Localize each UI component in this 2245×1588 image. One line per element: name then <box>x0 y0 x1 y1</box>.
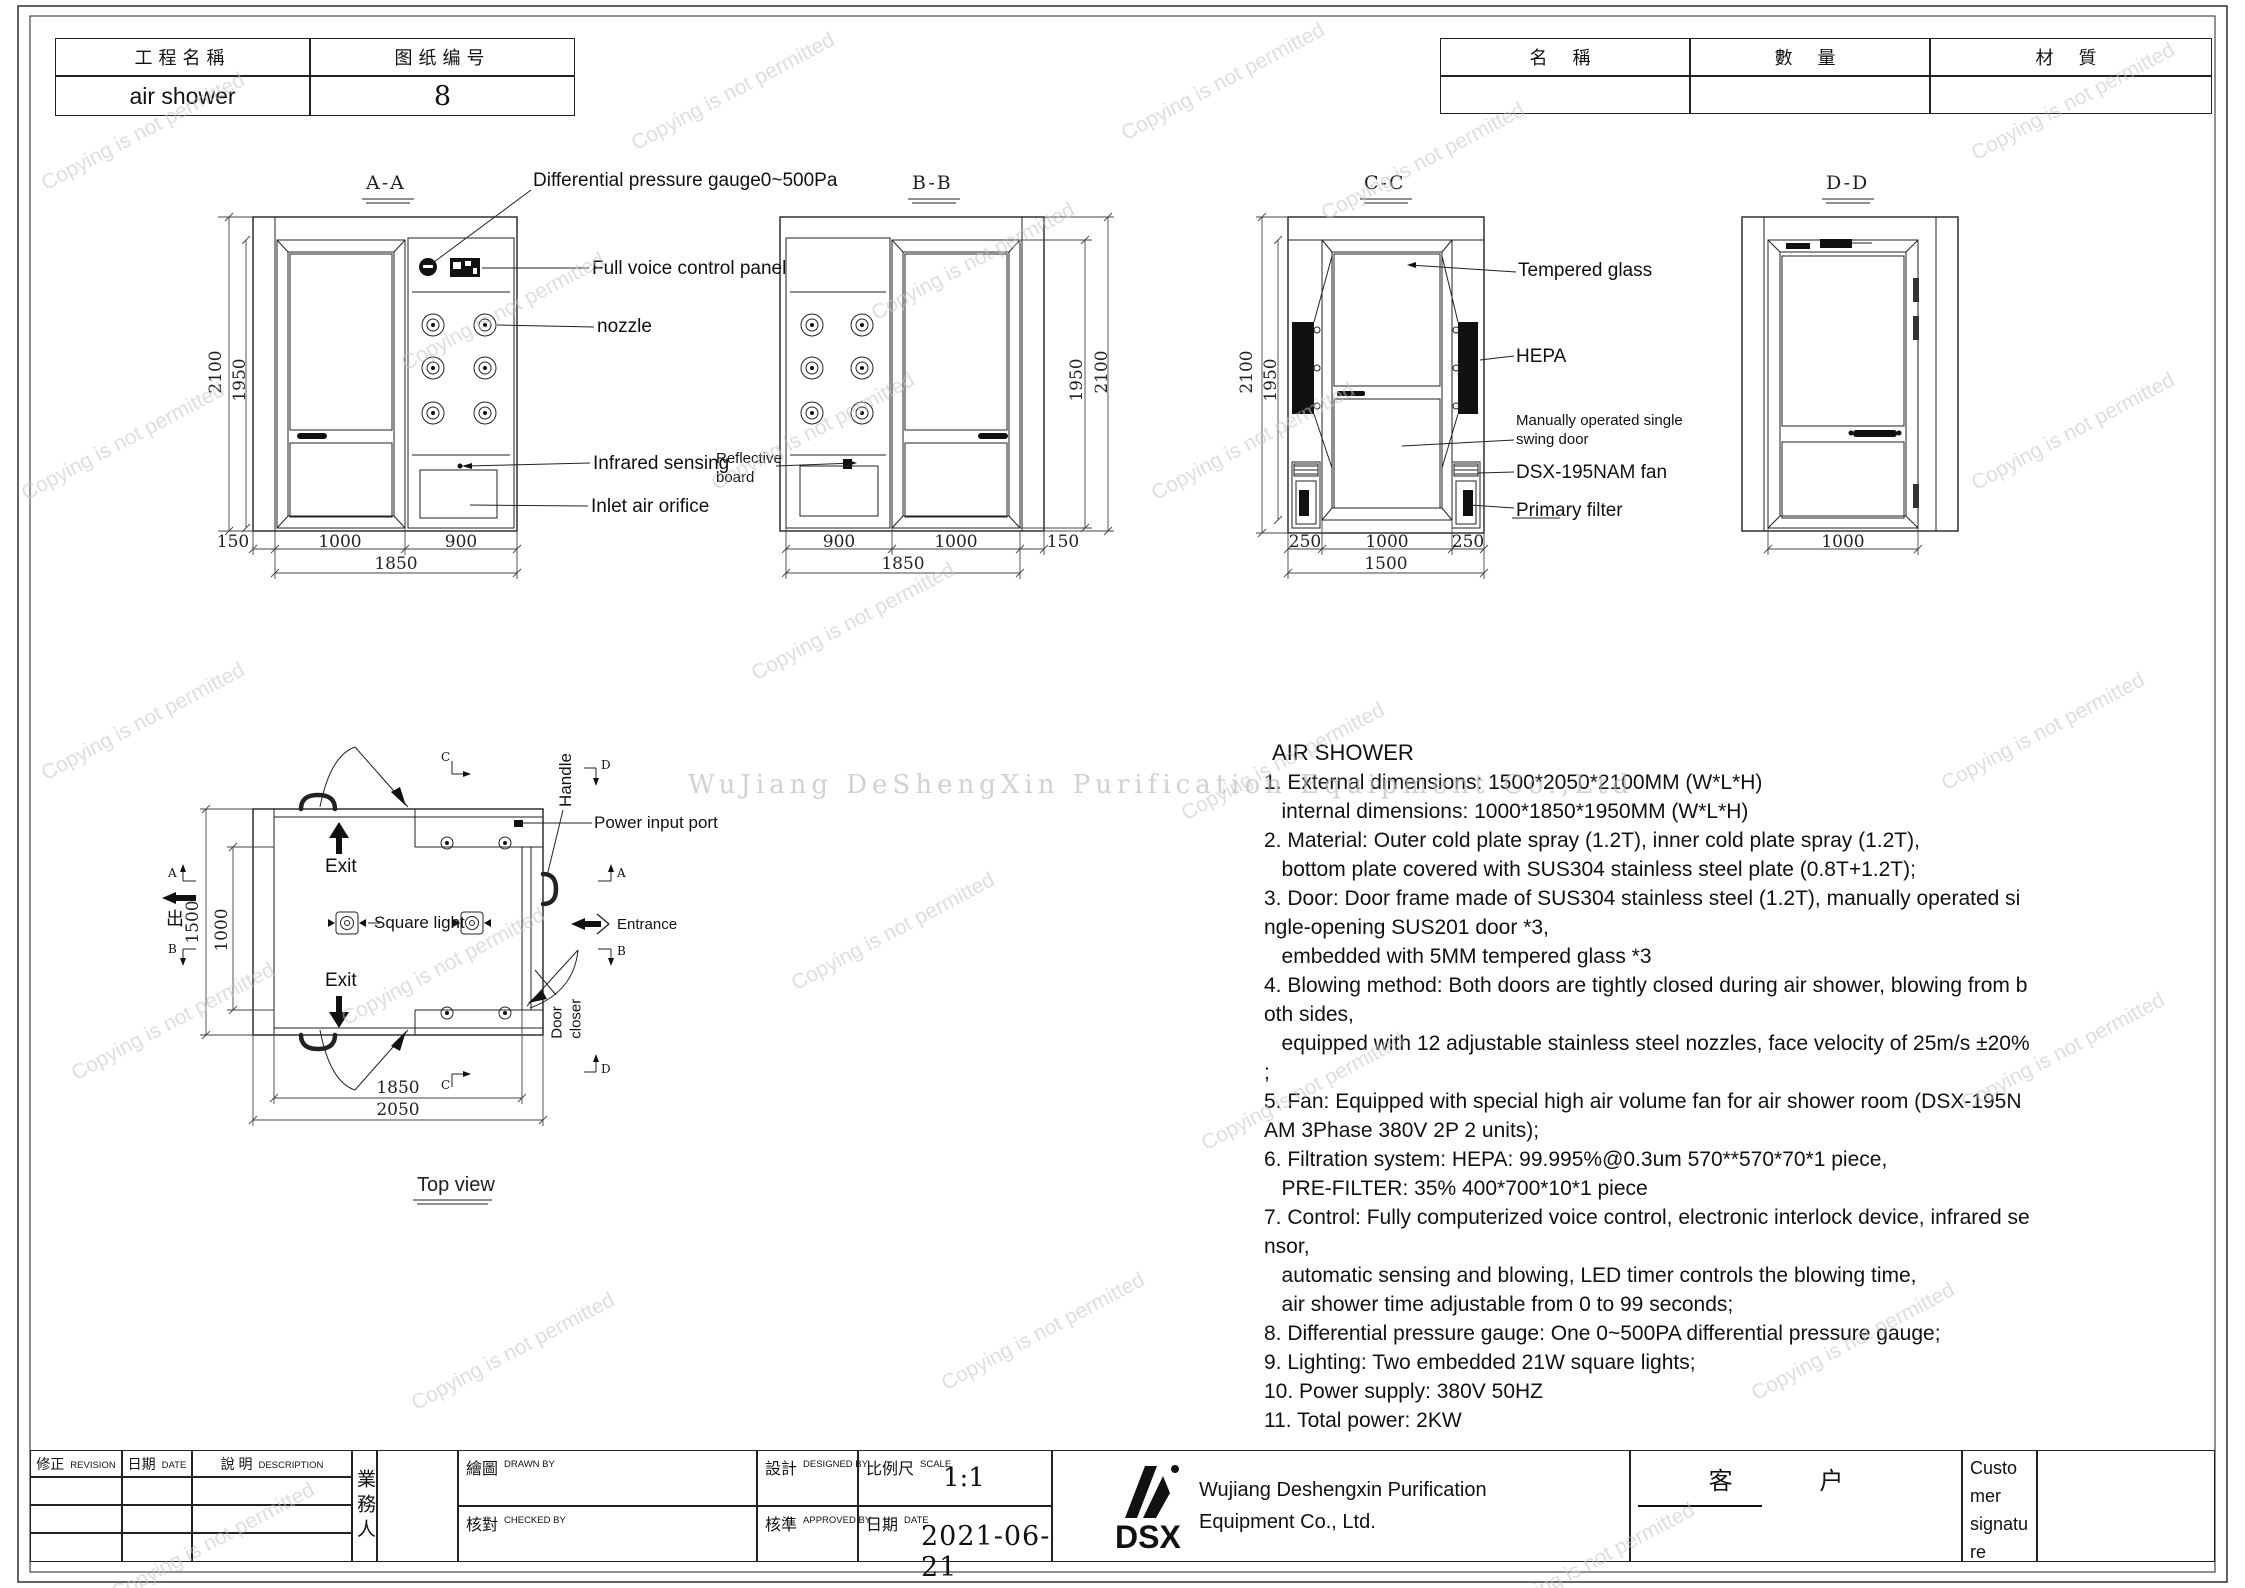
label-handle: Handle <box>556 750 576 810</box>
revision-row-empty <box>122 1477 192 1505</box>
leader-lines-top <box>368 810 592 995</box>
handle-bottom <box>301 1035 335 1049</box>
label-pressure-gauge: Differential pressure gauge0~500Pa <box>533 170 837 192</box>
sales-label: 業務人 <box>351 1469 378 1544</box>
marker-c-bottom: C <box>441 1078 450 1092</box>
parts-row-empty <box>1690 76 1930 114</box>
hinge <box>1913 316 1919 340</box>
revision-row-empty <box>192 1533 352 1562</box>
footer-sales-cell: 業務人 <box>352 1450 377 1562</box>
dim-bb-1950: 1950 <box>1067 348 1087 412</box>
dim-bb-1000: 1000 <box>924 532 988 552</box>
desc-en: DESCRIPTION <box>258 1456 323 1471</box>
footer-date-header: 日期DATE <box>122 1450 192 1477</box>
reflective-board <box>843 459 852 469</box>
dim-cc-1500: 1500 <box>1354 554 1418 574</box>
door-handle <box>297 433 327 439</box>
drawing-sheet: Copying is not permitted Copying is not … <box>0 0 2245 1588</box>
footer-empty-cell-right <box>2037 1450 2215 1562</box>
parts-col-material-label: 材 質 <box>2035 44 2106 70</box>
hinge <box>1913 484 1919 508</box>
revision-row-empty <box>192 1477 352 1505</box>
marker-a-right: A <box>617 866 626 880</box>
spec-body: 1. External dimensions: 1500*2050*2100MM… <box>1264 768 2214 1435</box>
footer-description-header: 說 明DESCRIPTION <box>192 1450 352 1477</box>
handle-right <box>543 874 556 904</box>
parts-col-qty-label: 數 量 <box>1774 44 1845 70</box>
dim-aa-1850: 1850 <box>364 554 428 574</box>
footer-customer-signature-cell: Customer signature <box>1962 1450 2037 1562</box>
company-line1: Wujiang Deshengxin Purification <box>1199 1474 1487 1506</box>
nozzles <box>422 314 496 424</box>
footer-designed-cell: 設計DESIGNED BY <box>757 1450 858 1506</box>
company-line2: Equipment Co., Ltd. <box>1199 1506 1487 1538</box>
revision-row-empty <box>30 1533 122 1562</box>
designed-cn: 設計 <box>765 1455 797 1479</box>
footer-checked-cell: 核對CHECKED BY <box>458 1506 757 1562</box>
drawing-no-value: 8 <box>310 76 575 116</box>
label-inlet: Inlet air orifice <box>591 496 709 518</box>
dim-aa-1000: 1000 <box>308 532 372 552</box>
revision-row-empty <box>192 1505 352 1533</box>
dim-cc-1950: 1950 <box>1261 348 1281 412</box>
view-title-bb: B-B <box>912 172 953 194</box>
footer-drawn-cell: 繪圖DRAWN BY <box>458 1450 757 1506</box>
marker-b-right: B <box>617 944 626 958</box>
dim-aa-150: 150 <box>201 532 265 552</box>
door-handle <box>978 433 1008 439</box>
glass-panel <box>290 254 392 430</box>
view-aa <box>218 190 857 579</box>
label-exit-bottom: Exit <box>325 970 357 992</box>
power-port <box>514 820 523 827</box>
marker-a-left: A <box>168 866 177 880</box>
view-cc <box>1256 213 1560 579</box>
dsx-logo-icon: DSX <box>1113 1460 1185 1552</box>
label-fan: DSX-195NAM fan <box>1516 462 1667 484</box>
view-title-cc: C-C <box>1364 172 1406 194</box>
label-tempered-glass: Tempered glass <box>1518 260 1652 282</box>
dim-bb-2100: 2100 <box>1092 340 1112 404</box>
glass-panel <box>1782 256 1904 426</box>
door-closer-hardware <box>1820 239 1852 248</box>
dim-cc-250-left: 250 <box>1273 532 1337 552</box>
label-entrance: Entrance <box>617 916 677 933</box>
view-bb <box>780 213 1114 579</box>
marker-c-top: C <box>441 750 450 764</box>
marker-d-top: D <box>601 758 611 772</box>
parts-col-name: 名 稱 <box>1440 38 1690 76</box>
glass-panel <box>1334 254 1440 386</box>
date-value: 2021-06-21 <box>921 1521 1051 1583</box>
label-primary-filter: Primary filter <box>1516 500 1623 522</box>
dim-bb-150: 150 <box>1031 532 1095 552</box>
label-exit-cn: 出 <box>166 905 184 931</box>
project-name-label: 工程名稱 <box>135 44 231 70</box>
dim-dd-1000: 1000 <box>1811 532 1875 552</box>
desc-cn: 說 明 <box>221 1454 253 1474</box>
revision-cn: 修正 <box>36 1454 64 1474</box>
dim-cc-250-right: 250 <box>1436 532 1500 552</box>
label-exit-top: Exit <box>325 856 357 878</box>
parts-col-qty: 數 量 <box>1690 38 1930 76</box>
label-reflective-board: Reflective board <box>716 450 782 488</box>
revision-en: REVISION <box>70 1456 115 1471</box>
date-cn: 日期 <box>128 1454 156 1474</box>
infrared-sensor <box>458 464 463 469</box>
view-title-top: Top view <box>417 1174 495 1197</box>
view-dd <box>1742 217 1958 555</box>
hinge <box>1913 278 1919 302</box>
parts-row-empty <box>1930 76 2212 114</box>
parts-col-name-label: 名 稱 <box>1529 44 1600 70</box>
dim-bb-1850: 1850 <box>871 554 935 574</box>
project-name-value: air shower <box>55 76 310 116</box>
footer-revision-header: 修正REVISION <box>30 1450 122 1477</box>
company-name: Wujiang Deshengxin Purification Equipmen… <box>1199 1474 1487 1538</box>
date2-cn: 日期 <box>866 1511 898 1535</box>
label-nozzle: nozzle <box>597 316 652 338</box>
customer-signature-label: Customer signature <box>1970 1455 2029 1567</box>
door-closer-hardware <box>1786 243 1810 249</box>
label-power-port: Power input port <box>594 813 718 833</box>
footer-empty-cell <box>377 1450 458 1562</box>
dim-top-1500: 1500 <box>183 890 203 954</box>
label-door-closer: Door closer <box>548 969 586 1039</box>
label-voice-panel: Full voice control panel <box>592 258 786 280</box>
nozzles <box>801 314 873 424</box>
glass-panel <box>905 254 1007 430</box>
handle-top <box>301 795 335 809</box>
approved-cn: 核準 <box>765 1511 797 1535</box>
drawn-cn: 繪圖 <box>466 1455 498 1479</box>
footer-date2-cell: 日期DATE 2021-06-21 <box>858 1506 1052 1562</box>
hepa-filter <box>1458 322 1478 414</box>
dsx-logo-text: DSX <box>1115 1519 1181 1552</box>
dim-aa-1950: 1950 <box>230 348 250 412</box>
dim-top-1000: 1000 <box>212 898 232 962</box>
label-hepa: HEPA <box>1516 346 1566 368</box>
fan-right <box>1452 462 1480 528</box>
footer-approved-cell: 核準APPROVED BY <box>757 1506 858 1562</box>
scale-value: 1:1 <box>943 1463 985 1493</box>
footer-scale-cell: 比例尺SCALE 1:1 <box>858 1450 1052 1506</box>
revision-row-empty <box>122 1533 192 1562</box>
date-en: DATE <box>162 1456 187 1471</box>
dim-top-1850: 1850 <box>366 1078 430 1098</box>
revision-row-empty <box>122 1505 192 1533</box>
fan-left <box>1292 462 1320 528</box>
revision-row-empty <box>30 1477 122 1505</box>
view-title-aa: A-A <box>366 172 406 194</box>
drawing-no-label: 图纸编号 <box>395 44 491 70</box>
spec-title: AIR SHOWER <box>1272 740 1414 766</box>
view-title-dd: D-D <box>1826 172 1869 194</box>
checked-cn: 核對 <box>466 1511 498 1535</box>
door-handle <box>1853 430 1897 437</box>
inlet-grille <box>420 470 497 518</box>
label-square-light: Square light <box>374 913 465 933</box>
scale-cn: 比例尺 <box>866 1455 914 1479</box>
label-swing-door: Manually operated single swing door <box>1516 412 1683 450</box>
footer-company-cell: DSX Wujiang Deshengxin Purification Equi… <box>1052 1450 1630 1562</box>
customer-signature-line <box>1638 1505 1762 1507</box>
project-name-header: 工程名稱 <box>55 38 310 76</box>
marker-d-bottom: D <box>601 1062 611 1076</box>
door-handle <box>1337 391 1365 396</box>
dim-cc-2100: 2100 <box>1237 340 1257 404</box>
drawing-no-header: 图纸编号 <box>310 38 575 76</box>
drawn-en: DRAWN BY <box>504 1455 555 1470</box>
dim-top-2050: 2050 <box>366 1100 430 1120</box>
dim-aa-900: 900 <box>429 532 493 552</box>
checked-en: CHECKED BY <box>504 1511 566 1526</box>
dim-bb-900: 900 <box>807 532 871 552</box>
customer-label: 客 户 <box>1709 1461 1884 1496</box>
dim-aa-2100: 2100 <box>206 340 226 404</box>
inlet-grille <box>800 466 878 516</box>
dim-cc-1000: 1000 <box>1355 532 1419 552</box>
marker-b-left: B <box>168 942 177 956</box>
parts-col-material: 材 質 <box>1930 38 2212 76</box>
hepa-filter <box>1292 322 1314 414</box>
label-infrared: Infrared sensing <box>593 453 729 475</box>
revision-row-empty <box>30 1505 122 1533</box>
parts-row-empty <box>1440 76 1690 114</box>
